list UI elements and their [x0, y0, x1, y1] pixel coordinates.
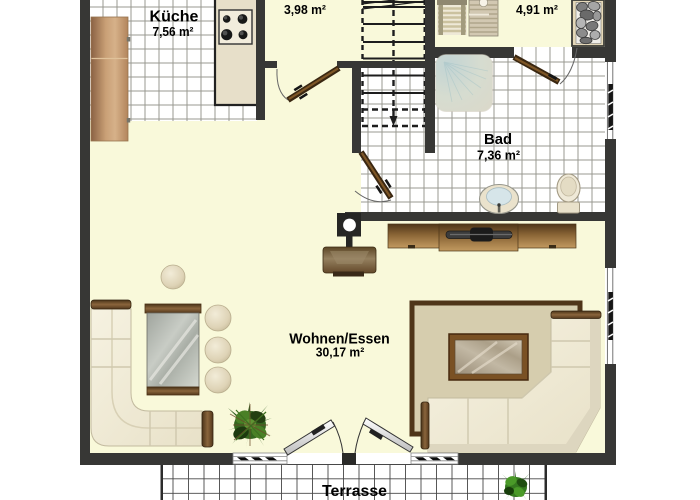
svg-text:7,56 m²: 7,56 m² — [153, 24, 195, 39]
svg-text:Küche: Küche — [150, 9, 199, 26]
svg-text:Terrasse: Terrasse — [322, 483, 387, 500]
svg-text:30,17 m²: 30,17 m² — [316, 345, 365, 360]
svg-text:7,36 m²: 7,36 m² — [477, 148, 521, 163]
svg-text:Bad: Bad — [484, 131, 512, 148]
svg-text:3,98 m²: 3,98 m² — [284, 2, 327, 17]
svg-text:4,91 m²: 4,91 m² — [516, 2, 559, 17]
